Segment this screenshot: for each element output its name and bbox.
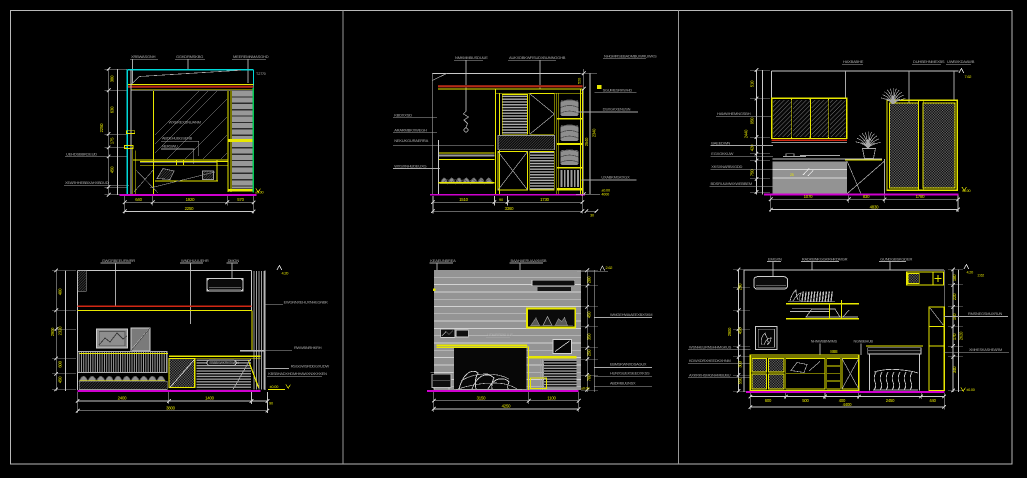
svg-text:UXABKMGKXGX: UXABKMGKXGX [601,175,630,180]
svg-text:2320: 2320 [58,326,63,336]
svg-text:175: 175 [110,137,115,144]
svg-text:MEEREMNMASGHD: MEEREMNMASGHD [233,54,269,59]
svg-text:UWBXKDAAWB: UWBXKDAAWB [947,59,975,64]
svg-text:510: 510 [750,80,755,87]
svg-text:2900: 2900 [50,327,55,336]
svg-text:2.62: 2.62 [606,265,613,270]
svg-text:ARARMBKXWEGH: ARARMBKXWEGH [394,128,427,133]
svg-text:NGNBBHUB: NGNBBHUB [854,340,874,344]
svg-text:XEARHHEBBXAHXBDUD: XEARHHEBBXAHXBDUD [65,180,109,185]
svg-text:2440: 2440 [744,129,749,138]
svg-text:90: 90 [269,402,273,406]
svg-text:1400: 1400 [205,396,215,401]
svg-text:XRBWASGNH: XRBWASGNH [131,54,156,59]
svg-text:KBSBHADXHDMHHAWXNXKHXEN: KBSBHADXHDMHHAWXNXKHXEN [268,371,327,376]
svg-text:2400: 2400 [118,396,128,401]
svg-text:30: 30 [590,214,594,218]
svg-text:170: 170 [952,333,957,340]
svg-text:KDWXDRXHEEDKXHNM: KDWXDRXHEEDKXHNM [689,358,731,363]
svg-text:NERSWU: NERSWU [162,145,178,149]
svg-text:NHGMRSEBADMBUWRUWKS: NHGMRSEBADMBUWRUWKS [604,54,657,59]
svg-text:XKSXNARBXGDD: XKSXNARBXGDD [711,164,742,169]
svg-text:250: 250 [587,349,592,356]
svg-text:2250: 2250 [185,206,195,211]
svg-text:UEHDSBBKDEUD: UEHDSBBKDEUD [66,152,97,157]
svg-text:BAAHAERUAAXMSB: BAAHAERUAAXMSB [511,258,547,263]
svg-text:AXKRKHSMGNHMBUBU: AXKRKHSMGNHMBUBU [689,373,731,378]
svg-text:420: 420 [750,144,755,151]
svg-text:2340: 2340 [592,128,597,137]
svg-text:450: 450 [587,311,592,318]
svg-text:4000: 4000 [601,192,609,196]
svg-text:DSXGKXENUSN: DSXGKXENUSN [603,107,631,112]
svg-text:2900: 2900 [727,327,732,336]
svg-text:950: 950 [750,117,755,124]
svg-text:RSGGWSRDDGXUDW: RSGGWSRDDGXUDW [291,363,330,368]
svg-text:250: 250 [737,283,742,290]
svg-text:UDMBSRKUUS: UDMBSRKUUS [487,332,513,337]
svg-text:1510: 1510 [459,197,469,202]
svg-text:ABDEHUBGSENB: ABDEHUBGSENB [162,136,193,141]
svg-text:4250: 4250 [502,404,512,409]
svg-text:2.62: 2.62 [978,274,985,278]
svg-text:4400: 4400 [843,402,853,407]
svg-text:±0.00: ±0.00 [966,388,975,392]
svg-text:EWGNNXEHUXNHEGNBK: EWGNNXEHUXNHEGNBK [284,300,329,305]
svg-text:700: 700 [587,374,592,381]
svg-text:BDSRUUMWXWEBBEM: BDSRUUMWXWEBBEM [711,181,752,186]
svg-text:GGKDRMSKBG: GGKDRMSKBG [176,54,203,59]
svg-text:WMGEHWAAEEXBXSKM: WMGEHWAAEEXBXSKM [610,312,652,317]
svg-text:630: 630 [110,106,115,113]
svg-text:XMHESKASHEARM: XMHESKASHEARM [969,347,1002,352]
svg-text:NHNWBBNWMS: NHNWBBNWMS [811,340,838,344]
svg-text:WXEREXSNUANM: WXEREXSNUANM [169,120,201,125]
svg-text:EMGXN: EMGXN [768,256,782,261]
svg-text:200: 200 [587,276,592,283]
svg-text:1730: 1730 [540,197,550,202]
svg-text:RMSNEGSMUXRUN: RMSNEGSMUXRUN [968,311,1003,316]
svg-text:750: 750 [750,169,755,176]
svg-text:450: 450 [58,376,63,383]
svg-text:HAMWHEMNGSBH: HAMWHEMNGSBH [717,111,751,116]
svg-text:450: 450 [110,166,115,173]
svg-text:7.62: 7.62 [965,74,972,79]
svg-text:640: 640 [135,197,142,202]
svg-text:SGUMESRKWHD: SGUMESRKWHD [603,87,633,92]
svg-text:220: 220 [952,293,957,300]
svg-text:HAXBABHE: HAXBABHE [843,59,864,64]
svg-text:3800: 3800 [166,405,176,410]
svg-text:±0.00: ±0.00 [270,384,280,389]
svg-text:KBDXXSD: KBDXXSD [394,113,412,118]
svg-text:BAEEDWN: BAEEDWN [711,140,730,145]
svg-text:1070: 1070 [804,194,814,199]
svg-text:380: 380 [110,75,115,82]
svg-text:WXSXNHUDEUXG: WXSXNHUDEUXG [394,164,426,169]
svg-text:570: 570 [237,197,244,202]
svg-text:300: 300 [737,360,742,367]
svg-text:1100: 1100 [547,395,556,400]
svg-text:RADKBNKGGKRHKDMGR: RADKBNKGGKRHKDMGR [802,256,848,261]
svg-text:KEAEUNBREA: KEAEUNBREA [430,258,456,263]
svg-text:DMGN: DMGN [228,258,240,263]
svg-text:ABDMBUUNSX: ABDMBUUNSX [610,381,636,386]
svg-text:340: 340 [952,366,957,373]
svg-text:400: 400 [58,288,63,295]
svg-text:AUKXDBKWRSUDXBUMNGGHB: AUKXDBKWRSUDXBUMNGGHB [509,55,566,60]
svg-text:600: 600 [765,398,772,403]
svg-text:EBMSKWNXDSAGUX: EBMSKWNXDSAGUX [610,362,647,367]
svg-text:GWGRBEEURMRR: GWGRBEEURMRR [102,258,136,263]
svg-text:25: 25 [790,173,794,177]
svg-text:EGXGKKUW: EGXGKKUW [711,151,733,156]
svg-text:450: 450 [737,327,742,334]
svg-text:2540: 2540 [584,137,589,146]
svg-text:600: 600 [58,360,63,367]
svg-text:830: 830 [863,194,870,199]
svg-text:GUNDGBSKGDER: GUNDGBSKGDER [880,256,912,261]
svg-text:NEKUKGURAERRA: NEKUKGURAERRA [394,138,428,143]
svg-text:DUHBEHNMEXBS: DUHBEHNMEXBS [913,59,945,64]
svg-text:4.20: 4.20 [967,271,974,275]
svg-text:HUNXSUEKSEEDXKSS: HUNXSUEKSEEDXKSS [610,371,650,376]
svg-text:RWWBNRHKRH: RWWBNRHKRH [294,345,322,350]
svg-text:180: 180 [952,274,957,281]
svg-text:T.2770: T.2770 [256,72,266,76]
svg-text:2450: 2450 [886,398,895,403]
svg-text:NMKMMBUSDUUE: NMKMMBUSDUUE [455,55,488,60]
svg-text:WSNHEURNSHHMGKUS: WSNHEURNSHHMGKUS [689,345,732,350]
svg-text:3360: 3360 [505,206,515,211]
svg-text:2250: 2250 [99,123,104,133]
svg-text:±0.00: ±0.00 [581,387,590,391]
svg-text:500: 500 [802,398,809,403]
svg-text:1780: 1780 [916,194,926,199]
svg-text:EBBBXWKRKSWBN: EBBBXWKRKSWBN [210,361,240,365]
svg-text:3150: 3150 [477,395,487,400]
svg-text:440: 440 [929,398,936,403]
svg-text:2620: 2620 [959,331,964,340]
svg-text:350: 350 [587,333,592,340]
svg-text:4.20: 4.20 [282,271,290,276]
svg-text:WNDHUUUEHR: WNDHUUUEHR [181,258,209,263]
svg-text:520: 520 [577,77,582,84]
svg-text:1920: 1920 [186,197,196,202]
svg-text:4830: 4830 [870,204,880,209]
svg-text:888: 888 [830,349,838,354]
